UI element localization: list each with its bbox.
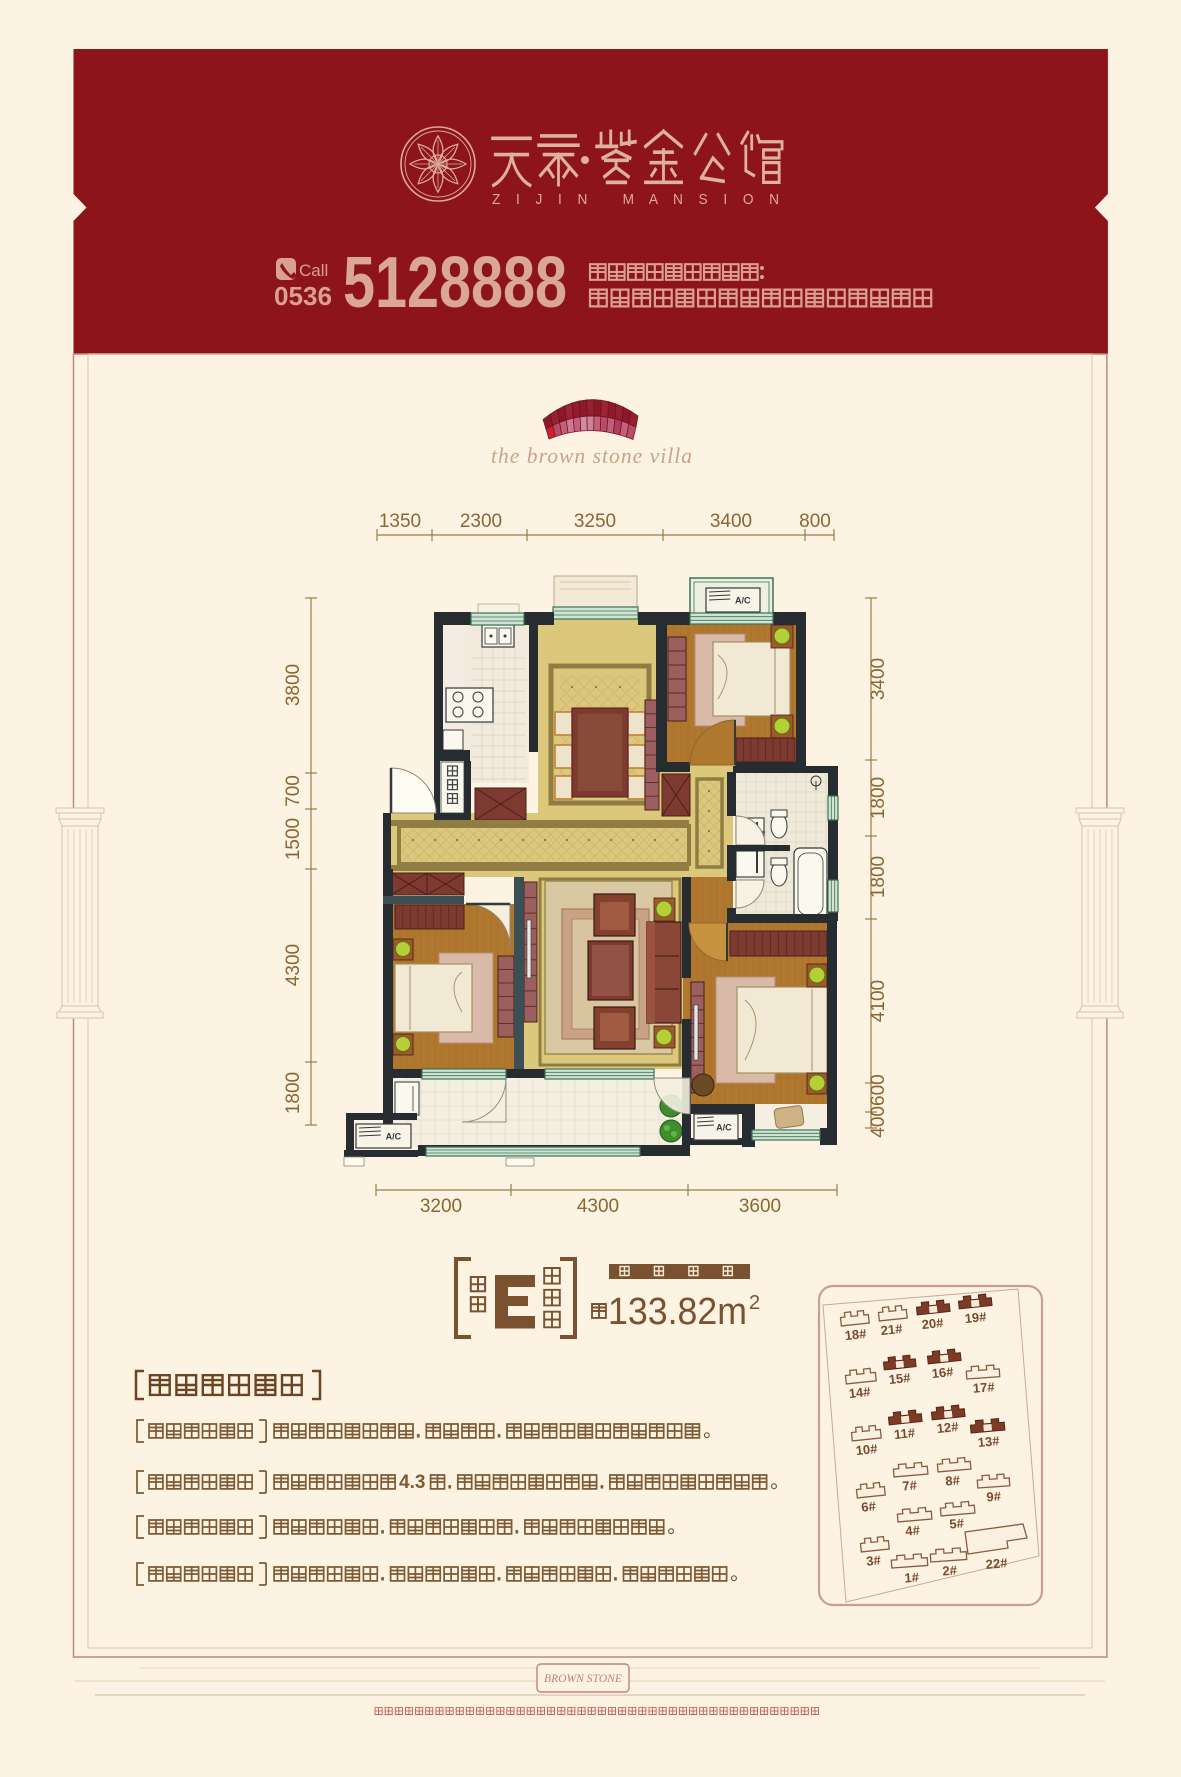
svg-text:Call: Call xyxy=(299,261,328,280)
svg-text:3250: 3250 xyxy=(574,511,616,532)
svg-text:17#: 17# xyxy=(972,1379,995,1396)
svg-text:14#: 14# xyxy=(848,1384,872,1401)
svg-text:A/C: A/C xyxy=(716,1123,732,1133)
svg-text:1#: 1# xyxy=(904,1569,920,1585)
svg-text:4100: 4100 xyxy=(868,980,889,1022)
svg-text:1800: 1800 xyxy=(868,856,889,898)
svg-text:133.82m: 133.82m xyxy=(608,1291,747,1333)
svg-text:4300: 4300 xyxy=(283,944,304,986)
svg-text:3800: 3800 xyxy=(283,664,304,706)
svg-text:1500: 1500 xyxy=(283,818,304,860)
svg-text:21#: 21# xyxy=(880,1321,904,1338)
svg-text:10#: 10# xyxy=(855,1441,879,1458)
svg-text:4300: 4300 xyxy=(577,1196,619,1217)
svg-text:3#: 3# xyxy=(866,1552,883,1569)
svg-text:1800: 1800 xyxy=(868,777,889,819)
svg-text:11#: 11# xyxy=(893,1425,916,1442)
svg-text:2#: 2# xyxy=(942,1562,958,1578)
svg-text:1800: 1800 xyxy=(283,1072,304,1114)
svg-text:4#: 4# xyxy=(905,1522,921,1538)
svg-text:BROWN STONE: BROWN STONE xyxy=(544,1671,623,1685)
svg-text:22#: 22# xyxy=(985,1555,1009,1572)
svg-text:4.3: 4.3 xyxy=(399,1472,425,1493)
svg-text:2: 2 xyxy=(749,1292,760,1314)
svg-text:18#: 18# xyxy=(844,1326,868,1343)
svg-text:2300: 2300 xyxy=(460,511,502,532)
svg-text:the brown stone villa: the brown stone villa xyxy=(491,443,693,468)
svg-text:8#: 8# xyxy=(945,1472,961,1488)
svg-text:700: 700 xyxy=(283,775,304,807)
svg-text:15#: 15# xyxy=(888,1370,912,1387)
svg-text:20#: 20# xyxy=(921,1315,945,1332)
svg-text:A/C: A/C xyxy=(735,596,751,606)
svg-text:3400: 3400 xyxy=(868,658,889,700)
svg-text:9#: 9# xyxy=(986,1488,1002,1504)
svg-text:A/C: A/C xyxy=(386,1132,402,1142)
svg-text:800: 800 xyxy=(799,511,831,532)
svg-text:13#: 13# xyxy=(977,1433,1001,1450)
svg-text:Z I J I N M A N S I O N: Z I J I N M A N S I O N xyxy=(492,191,785,208)
svg-text:1350: 1350 xyxy=(379,511,421,532)
svg-text:3400: 3400 xyxy=(710,511,752,532)
svg-text:5#: 5# xyxy=(949,1515,965,1531)
svg-text:400600: 400600 xyxy=(868,1074,889,1137)
svg-text:19#: 19# xyxy=(964,1309,988,1326)
svg-text:16#: 16# xyxy=(931,1364,955,1381)
svg-text:7#: 7# xyxy=(902,1477,918,1493)
svg-text:12#: 12# xyxy=(936,1419,960,1436)
svg-text:6#: 6# xyxy=(861,1498,878,1515)
svg-text:3200: 3200 xyxy=(420,1196,462,1217)
svg-text:3600: 3600 xyxy=(739,1196,781,1217)
svg-text:5128888: 5128888 xyxy=(343,243,567,323)
svg-text:0536: 0536 xyxy=(274,281,332,311)
